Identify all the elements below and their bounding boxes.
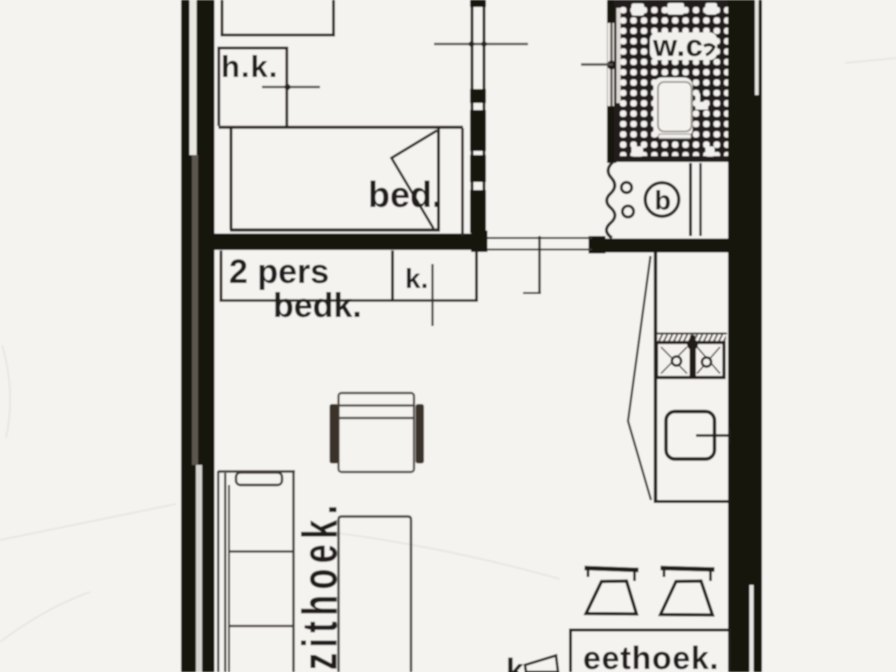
svg-text:eethoek.: eethoek.	[583, 640, 719, 672]
svg-text:k: k	[506, 652, 524, 672]
svg-text:bed.: bed.	[368, 174, 442, 215]
svg-text:h.k.: h.k.	[221, 49, 278, 84]
svg-text:b: b	[655, 186, 672, 216]
svg-text:k.: k.	[405, 263, 428, 294]
svg-text:bedk.: bedk.	[273, 287, 362, 325]
svg-text:w.c: w.c	[652, 28, 703, 63]
svg-text:2 pers: 2 pers	[229, 253, 329, 291]
